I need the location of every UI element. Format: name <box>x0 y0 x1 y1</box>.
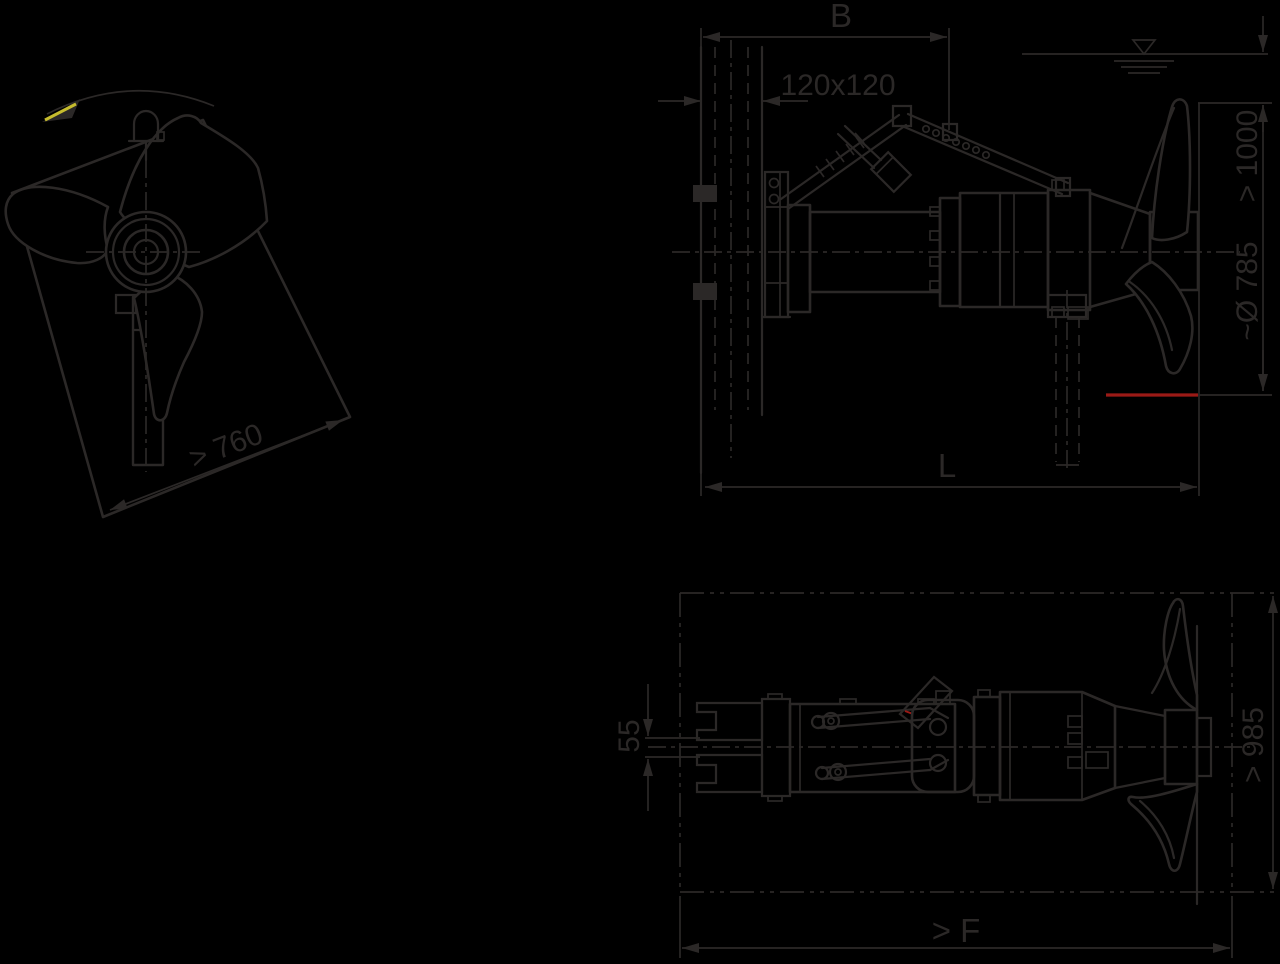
hinge-knuckle-plan <box>912 700 974 792</box>
dim-rail: 120x120 <box>658 69 896 102</box>
dim-label-l: L <box>938 447 956 484</box>
dim-clearance-width: > 985 <box>1237 596 1273 889</box>
dim-l: L <box>701 447 1197 496</box>
plan-view: 55 > 985 > F <box>613 593 1278 958</box>
rail-clamp-bolt <box>693 283 717 300</box>
dim-label-f: > F <box>932 912 981 949</box>
dim-label-785: ~Ø 785 <box>1231 241 1264 340</box>
motor-body <box>788 198 960 312</box>
guide-rail <box>693 40 762 473</box>
gear-housing <box>960 180 1150 319</box>
dim-label-55: 55 <box>613 719 646 752</box>
lower-guide-bracket <box>1048 290 1086 468</box>
dim-label-rail: 120x120 <box>780 69 895 102</box>
propeller-plan <box>1129 599 1197 904</box>
propeller-side <box>1122 99 1199 496</box>
drawing-canvas: > 760 <box>0 0 1280 964</box>
dim-label-b: B <box>830 0 852 34</box>
water-level-icon <box>1022 40 1268 73</box>
side-view: B 120x120 > 1000 ~Ø 785 L <box>658 0 1272 496</box>
mount-bracket <box>762 172 790 317</box>
dim-clearance-floor: > F <box>680 896 1232 958</box>
rail-clamp-bolt <box>693 185 717 202</box>
cable-gland <box>838 126 911 192</box>
dim-label-1000: > 1000 <box>1231 110 1264 203</box>
dim-label-985: > 985 <box>1237 707 1270 783</box>
motor-plan-right <box>974 690 1211 802</box>
front-view: > 760 <box>6 91 350 517</box>
mixer-installation-drawing: > 760 <box>0 0 1280 964</box>
